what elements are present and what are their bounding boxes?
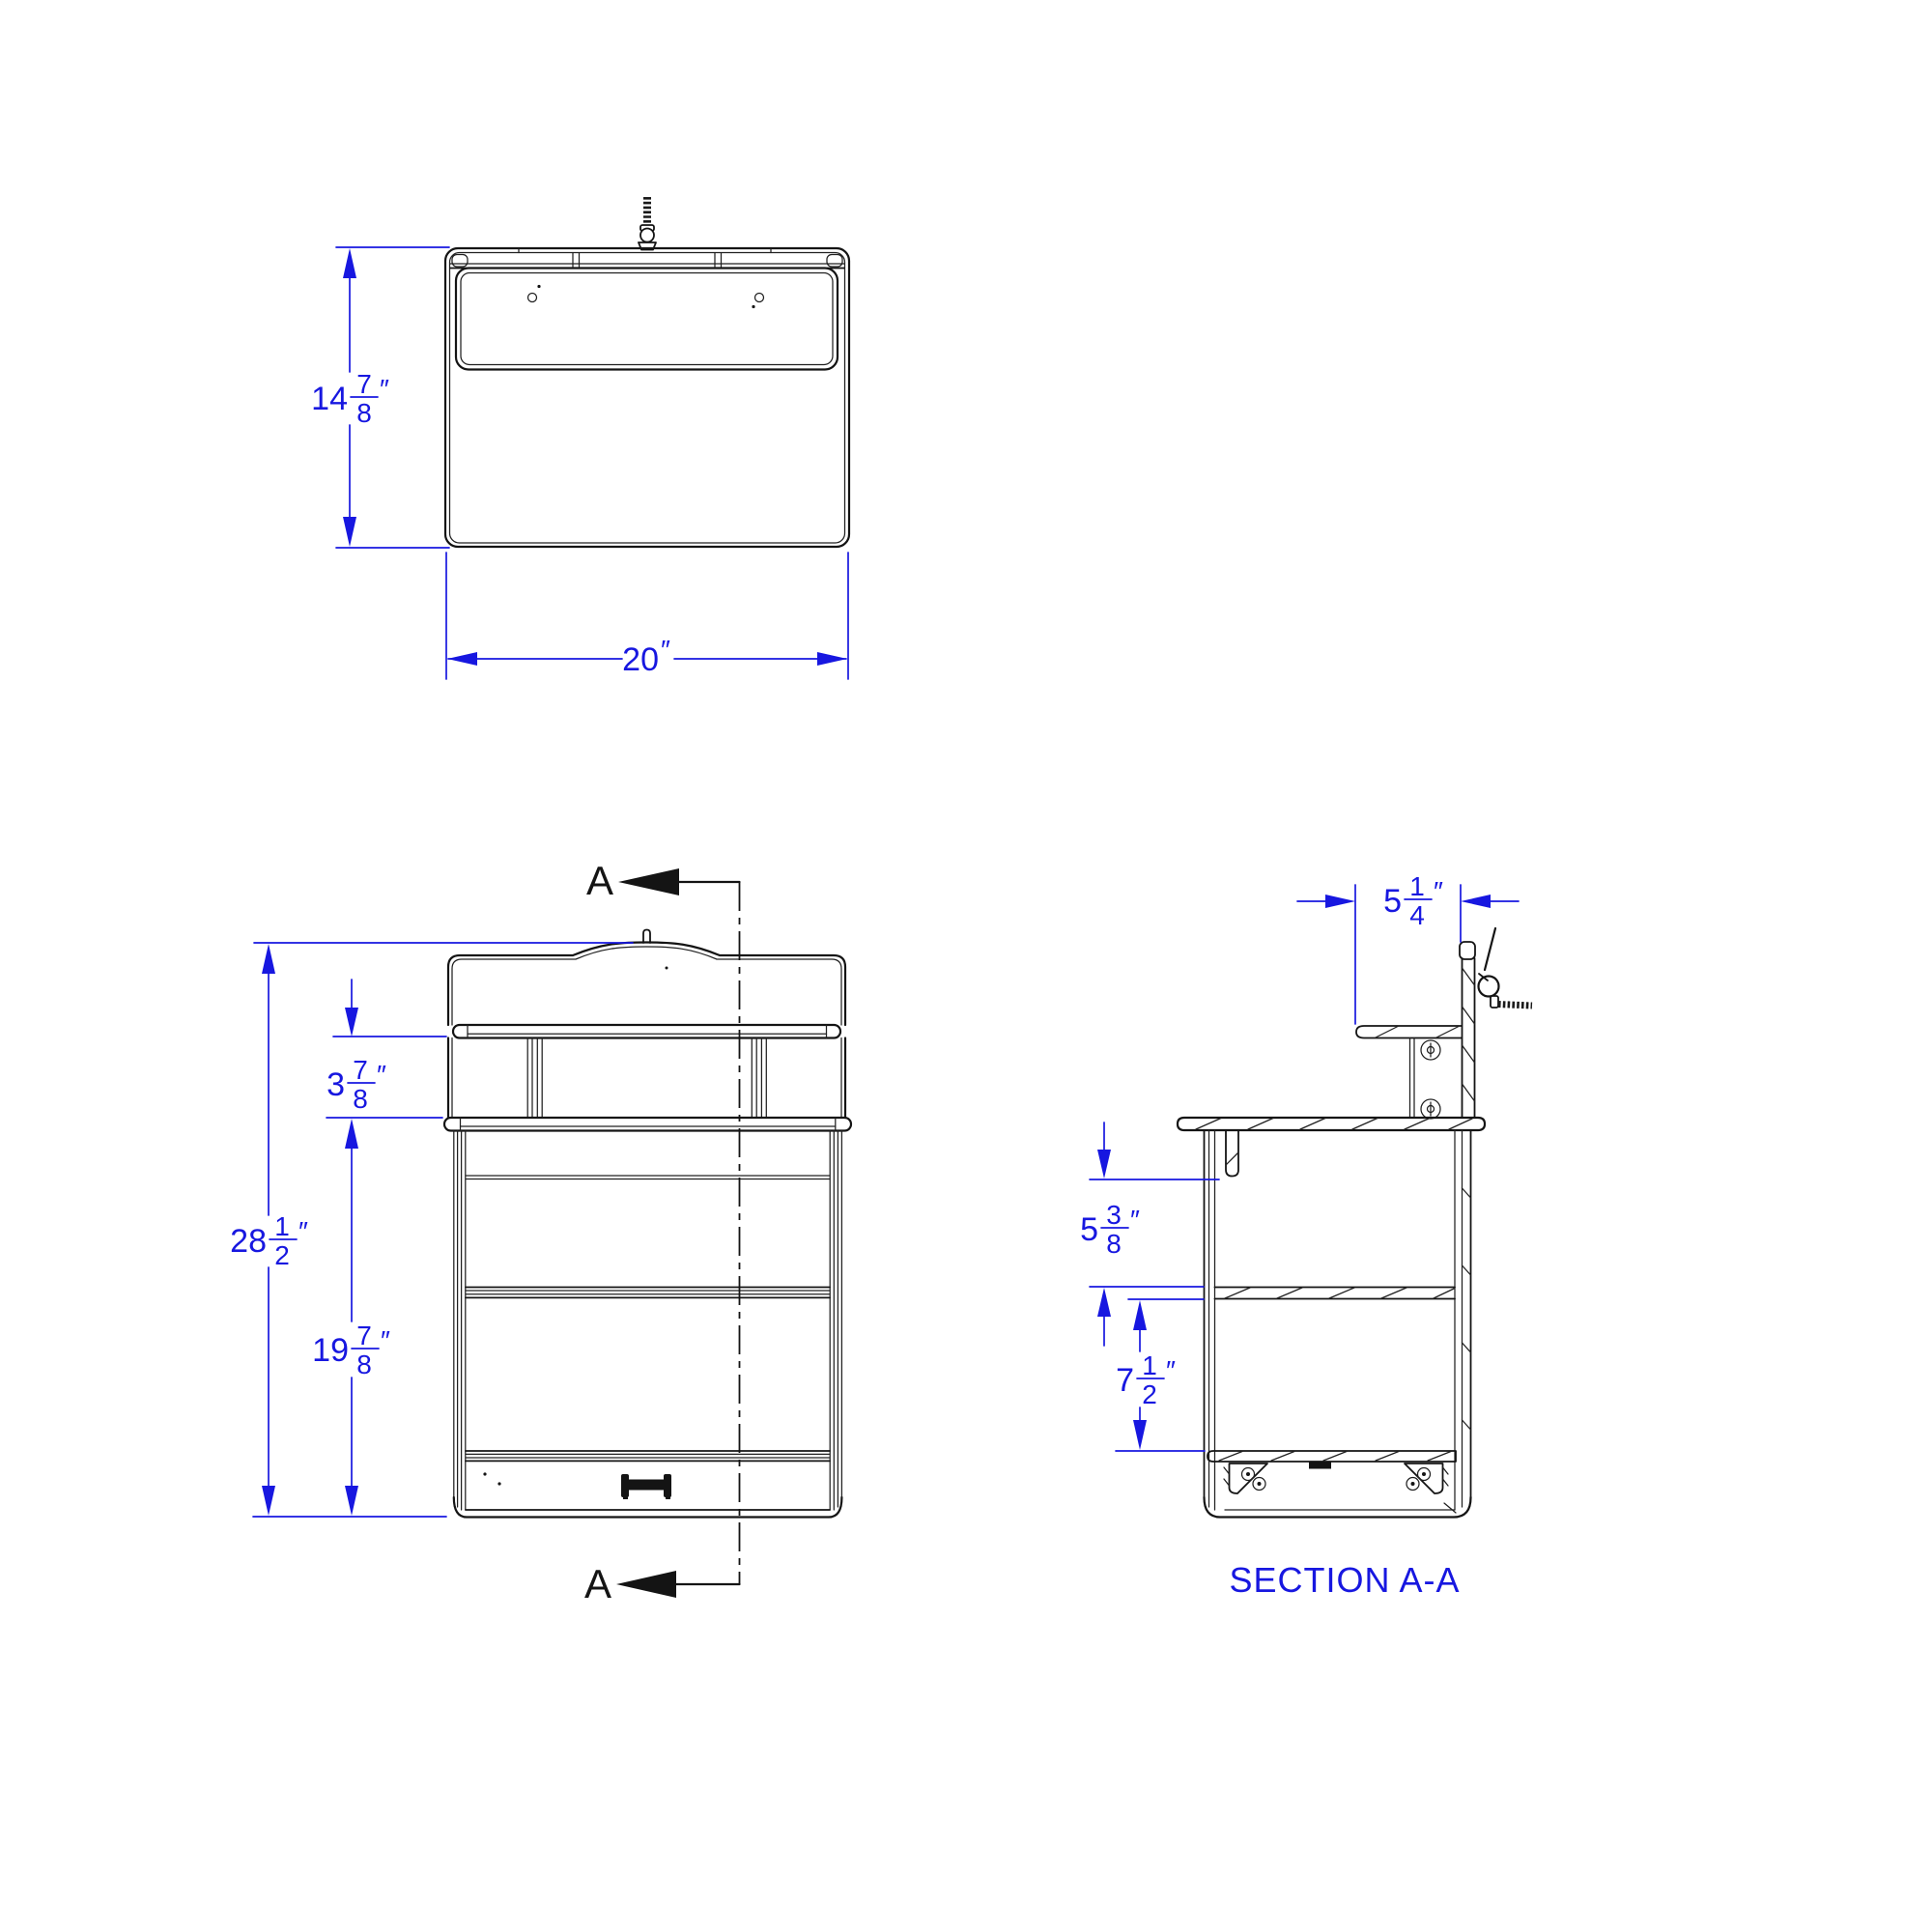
- dim-value: 5: [1383, 883, 1402, 920]
- front-cabinet: [454, 1131, 842, 1518]
- top-riser-bar: [450, 249, 844, 269]
- dim-unit: ″: [661, 635, 670, 665]
- section-title: SECTION A-A: [1229, 1560, 1460, 1600]
- dim-denominator: 2: [274, 1240, 290, 1270]
- section-cabinet: [1205, 1130, 1471, 1518]
- dim-riser-height: 3 7 8 ″: [327, 980, 446, 1118]
- dim-numerator: 1: [1409, 871, 1425, 901]
- section-bottom-shelf: [1207, 1451, 1456, 1469]
- front-middle-shelf: [466, 1288, 830, 1298]
- dim-shelf-spacing: 7 1 2 ″: [1116, 1299, 1205, 1451]
- dim-top-height: 14 7 8 ″: [311, 247, 449, 548]
- screw-hole: [755, 294, 764, 302]
- dim-numerator: 3: [1106, 1200, 1122, 1230]
- cad-drawing: 14 7 8 ″ 20 ″: [0, 0, 1932, 1932]
- dim-overall-height: 28 1 2 ″: [230, 943, 633, 1517]
- section-arrow-icon: [616, 1571, 676, 1598]
- dim-unit: ″: [380, 374, 389, 404]
- section-arrow-icon: [618, 868, 679, 895]
- dim-value: 28: [230, 1223, 267, 1260]
- latch-hardware-icon: [1309, 1463, 1331, 1469]
- dim-unit: ″: [381, 1325, 390, 1355]
- section-counter: [1178, 1118, 1485, 1130]
- corner-bracket-icon: [1405, 1463, 1448, 1493]
- dim-value: 20: [622, 641, 659, 678]
- drawing-sheet: 14 7 8 ″ 20 ″: [0, 0, 1932, 1932]
- dim-unit: ″: [1130, 1205, 1140, 1235]
- screw-hole: [528, 294, 537, 302]
- section-marker-bottom: A: [584, 1561, 611, 1606]
- dim-value: 5: [1080, 1211, 1098, 1248]
- top-panel: [456, 269, 838, 370]
- dim-top-width: 20 ″: [446, 553, 848, 679]
- dim-value: 3: [327, 1066, 345, 1103]
- top-pin-icon: [643, 930, 650, 944]
- screw-icon: [1421, 1099, 1440, 1119]
- dim-unit: ″: [298, 1216, 308, 1246]
- dim-value: 7: [1116, 1362, 1134, 1399]
- section-back-panel: [1460, 942, 1475, 1118]
- front-lower-shelf: [466, 1451, 830, 1461]
- section-coat-hook: [1226, 1130, 1238, 1177]
- top-outline: [445, 248, 849, 547]
- top-view: [445, 197, 849, 547]
- dim-denominator: 8: [356, 398, 372, 428]
- dim-denominator: 8: [1106, 1229, 1122, 1259]
- dim-numerator: 1: [1142, 1350, 1157, 1380]
- front-back-panel: [448, 930, 845, 1119]
- dim-unit: ″: [377, 1060, 386, 1090]
- section-cut-line: A A: [584, 858, 740, 1606]
- dim-hook-clearance: 5 3 8 ″: [1080, 1122, 1219, 1346]
- dim-worktop-height: 19 7 8 ″: [312, 1119, 390, 1516]
- dim-unit: ″: [1434, 876, 1443, 906]
- dim-unit: ″: [1166, 1355, 1176, 1385]
- dim-denominator: 8: [353, 1084, 368, 1114]
- dim-shelf-depth: 5 1 4 ″: [1297, 871, 1519, 1024]
- dim-denominator: 8: [356, 1350, 372, 1379]
- corner-bracket-icon: [1224, 1463, 1267, 1493]
- front-shelf-supports: [527, 1038, 766, 1119]
- screw-icon: [1421, 1040, 1440, 1060]
- front-counter: [444, 1118, 851, 1131]
- dim-numerator: 7: [353, 1055, 368, 1085]
- dim-denominator: 2: [1142, 1379, 1157, 1409]
- front-upper-shelf: [453, 1025, 840, 1038]
- dim-numerator: 1: [274, 1211, 290, 1241]
- dim-numerator: 7: [356, 369, 372, 399]
- dim-denominator: 4: [1409, 900, 1425, 930]
- eye-bolt-icon: [639, 197, 656, 250]
- hook-hardware-icon: [1479, 928, 1533, 1008]
- section-upper-shelf: [1356, 1026, 1462, 1119]
- section-marker-top: A: [586, 858, 613, 903]
- dim-value: 14: [311, 381, 348, 417]
- latch-hardware-icon: [621, 1474, 671, 1499]
- dim-value: 19: [312, 1332, 349, 1369]
- dim-numerator: 7: [356, 1321, 372, 1350]
- front-view: [444, 930, 851, 1518]
- section-middle-shelf: [1215, 1288, 1456, 1299]
